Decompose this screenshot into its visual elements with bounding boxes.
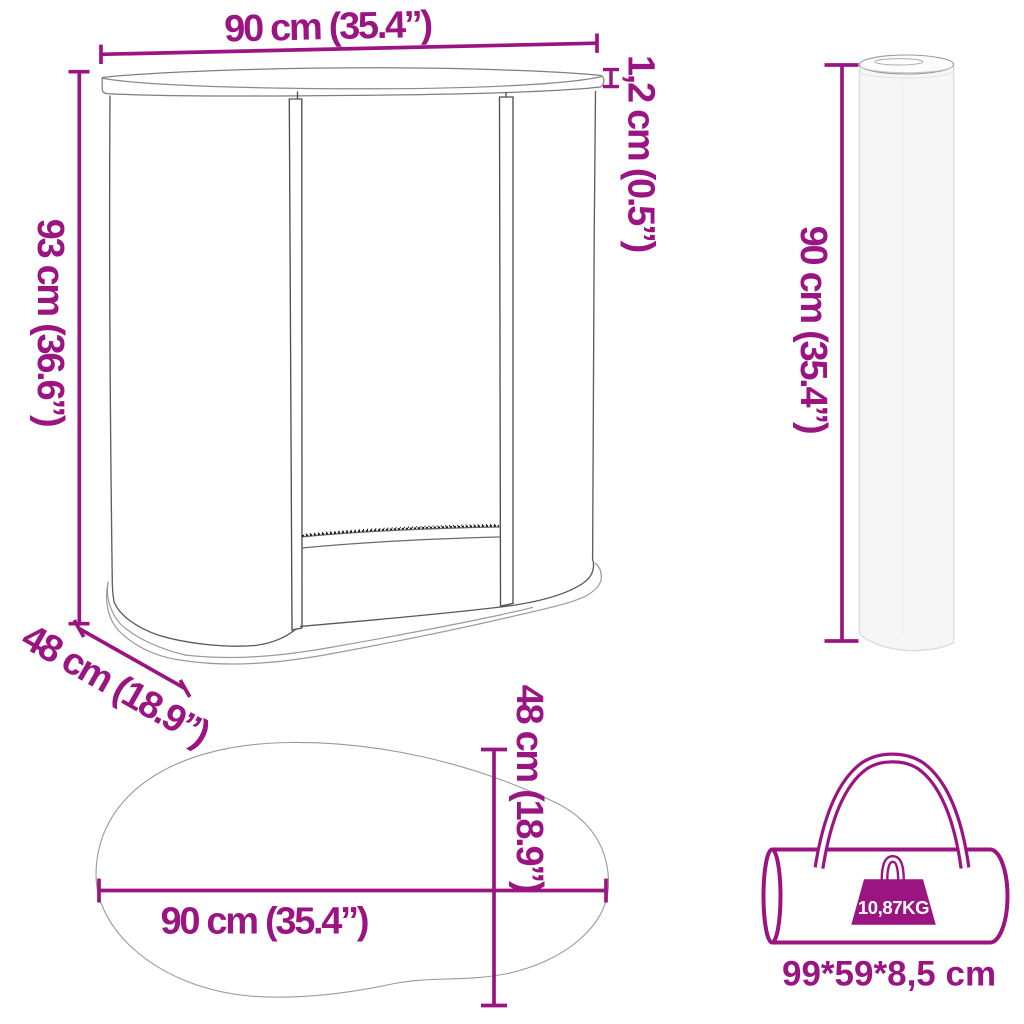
svg-text:99*59*8,5 cm: 99*59*8,5 cm [782,955,996,994]
svg-text:90 cm (35.4”): 90 cm (35.4”) [792,226,834,433]
svg-text:90 cm (35.4”): 90 cm (35.4”) [161,901,368,943]
svg-text:1,2 cm (0.5”): 1,2 cm (0.5”) [619,55,661,252]
svg-text:93 cm (36.6”): 93 cm (36.6”) [29,219,71,426]
svg-text:48 cm (18.9”): 48 cm (18.9”) [508,685,550,892]
svg-text:10,87KG: 10,87KG [858,897,929,918]
svg-text:90 cm (35.4”): 90 cm (35.4”) [224,4,432,51]
